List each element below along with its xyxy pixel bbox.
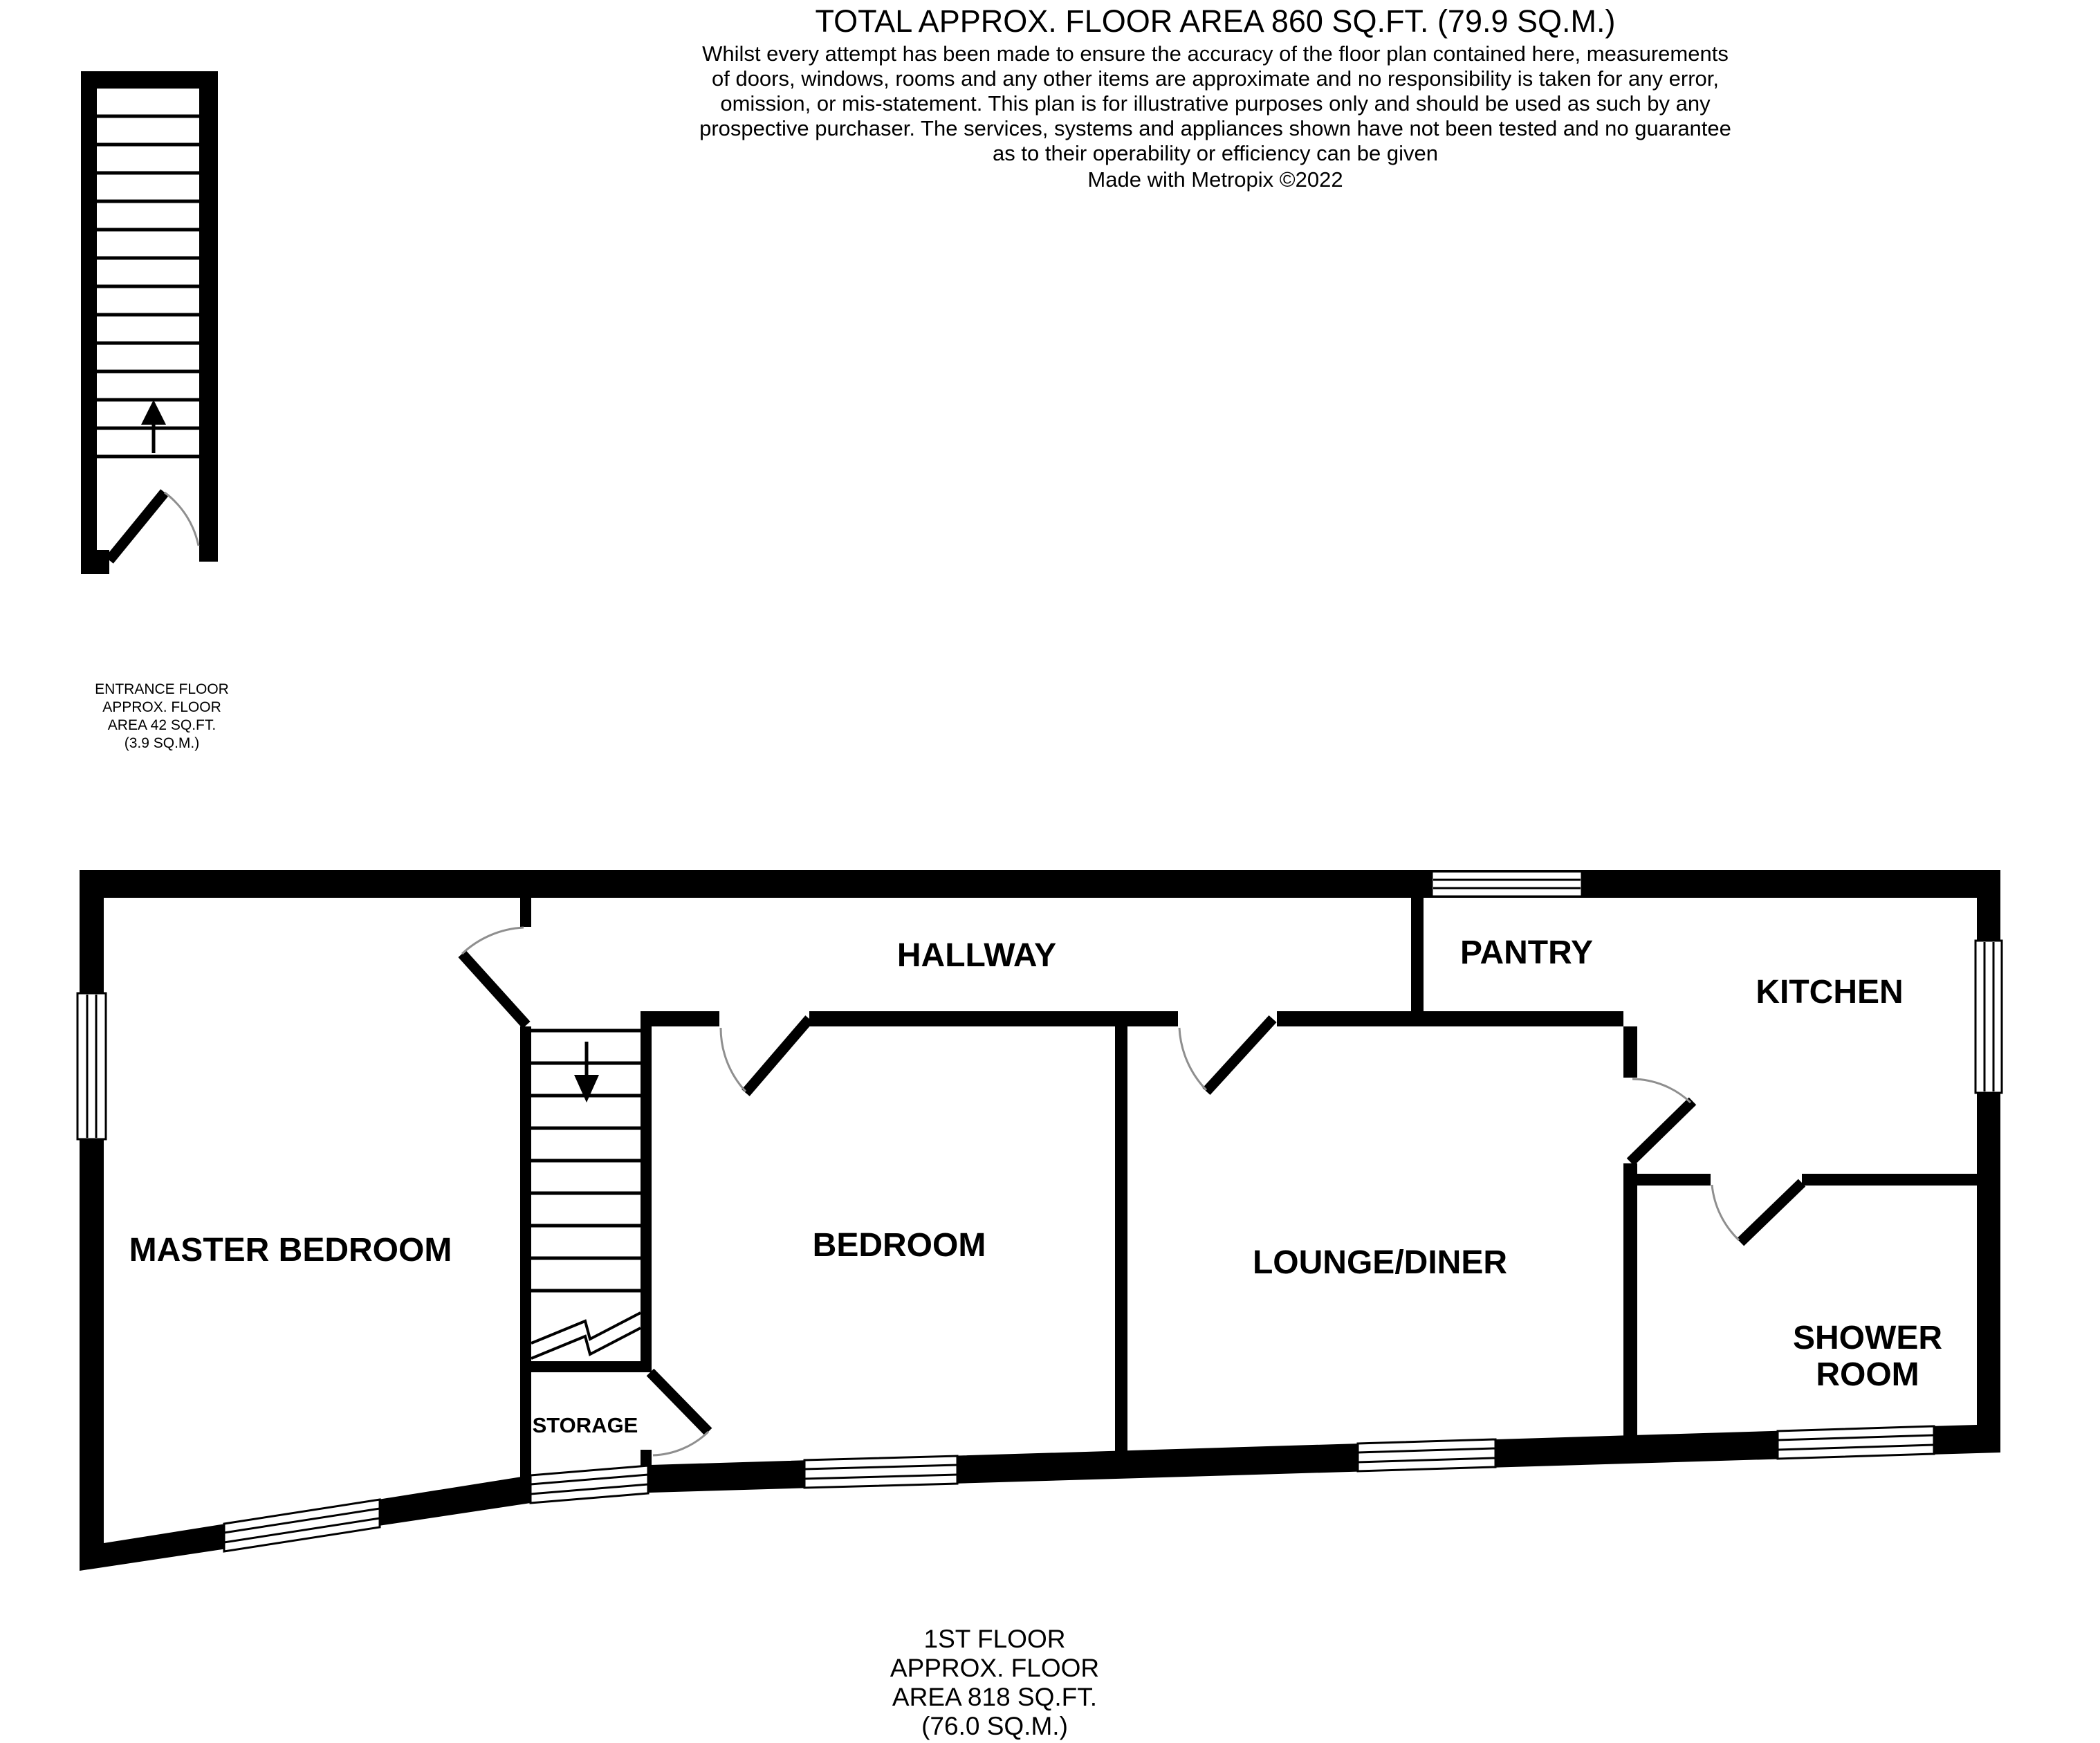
door-kitchen-to-shower-room: [1712, 1183, 1802, 1242]
total-area-title: TOTAL APPROX. FLOOR AREA 860 SQ.FT. (79.…: [815, 3, 1615, 39]
room-label-shower-room: ROOM: [1816, 1356, 1919, 1393]
door-arc: [462, 928, 524, 954]
entrance-label-line: ENTRANCE FLOOR: [95, 681, 229, 697]
floor-plan-page: TOTAL APPROX. FLOOR AREA 860 SQ.FT. (79.…: [0, 0, 2100, 1743]
entrance-label-line: AREA 42 SQ.FT.: [108, 717, 216, 733]
stairs-down-arrow-icon: [574, 1042, 599, 1103]
door-leaf: [1206, 1019, 1273, 1091]
door-master-bedroom: [462, 928, 526, 1025]
window-shower-room-bottom: [1778, 1426, 1934, 1459]
bedroom-wall-east: [1115, 1026, 1127, 1456]
stair-break-line: [531, 1328, 641, 1358]
entrance-label-line: (3.9 SQ.M.): [125, 735, 200, 751]
disclaimer-line: prospective purchaser. The services, sys…: [699, 116, 1731, 140]
entrance-wall-top: [81, 71, 218, 89]
door-arc: [1179, 1028, 1206, 1090]
entrance-floor-label: ENTRANCE FLOOR APPROX. FLOOR AREA 42 SQ.…: [95, 681, 229, 751]
window-master-bedroom-bottom: [224, 1500, 380, 1551]
stairwell-wall-right: [641, 1011, 652, 1372]
disclaimer-line: omission, or mis-statement. This plan is…: [720, 91, 1711, 116]
door-leaf: [1740, 1183, 1802, 1242]
door-bedroom: [721, 1019, 809, 1093]
floor-plan-canvas: TOTAL APPROX. FLOOR AREA 860 SQ.FT. (79.…: [0, 0, 2100, 1743]
first-floor-label-line: (76.0 SQ.M.): [921, 1712, 1068, 1740]
window-master-bedroom-left: [77, 993, 106, 1139]
shower-wall-north-segment: [1637, 1174, 1711, 1186]
door-lounge-diner: [1179, 1019, 1273, 1091]
entrance-label-line: APPROX. FLOOR: [102, 699, 221, 715]
first-floor-label: 1ST FLOOR APPROX. FLOOR AREA 818 SQ.FT. …: [890, 1625, 1099, 1740]
outer-wall-top: [80, 870, 2000, 898]
hallway-wall-segment: [809, 1011, 1178, 1026]
disclaimer-line: Whilst every attempt has been made to en…: [702, 41, 1729, 66]
door-storage: [650, 1372, 708, 1455]
room-label-storage: STORAGE: [533, 1413, 638, 1437]
room-label-bedroom: BEDROOM: [813, 1227, 986, 1264]
door-leaf: [1630, 1101, 1693, 1162]
lounge-kitchen-door-jamb: [1623, 1026, 1637, 1078]
entrance-staircase: [81, 71, 218, 574]
disclaimer-line: as to their operability or efficiency ca…: [993, 141, 1438, 165]
window-pantry-top: [1432, 871, 1582, 896]
outer-wall-left: [80, 870, 104, 1555]
room-label-shower-room: SHOWER: [1793, 1320, 1942, 1356]
door-arc: [721, 1028, 746, 1091]
entrance-stair-treads: [97, 116, 199, 456]
first-floor-label-line: 1ST FLOOR: [924, 1625, 1066, 1653]
window-storage-bottom: [531, 1466, 648, 1503]
first-floor-label-line: APPROX. FLOOR: [890, 1654, 1099, 1682]
door-arc: [1632, 1079, 1691, 1103]
pantry-wall-west: [1411, 898, 1424, 1026]
hallway-wall-segment: [1277, 1011, 1623, 1026]
room-label-master-bedroom: MASTER BEDROOM: [129, 1232, 452, 1269]
main-staircase: [531, 1031, 641, 1358]
hallway-wall-segment: [643, 1011, 719, 1026]
door-leaf: [650, 1372, 708, 1432]
storage-wall-north: [531, 1361, 652, 1372]
master-bedroom-door-jamb: [520, 898, 531, 927]
door-arc: [653, 1432, 708, 1455]
entrance-door-arc: [165, 492, 199, 546]
room-label-kitchen: KITCHEN: [1756, 974, 1903, 1011]
stairwell-wall-left: [520, 1026, 531, 1497]
first-floor-label-line: AREA 818 SQ.FT.: [892, 1683, 1097, 1711]
header-text-block: TOTAL APPROX. FLOOR AREA 860 SQ.FT. (79.…: [699, 3, 1731, 192]
lounge-wall-east: [1623, 1163, 1637, 1446]
window-lounge-bottom: [1358, 1439, 1495, 1471]
door-lounge-to-kitchen: [1630, 1079, 1693, 1162]
room-label-lounge-diner: LOUNGE/DINER: [1253, 1244, 1507, 1281]
entrance-door-leaf: [109, 492, 165, 560]
door-leaf: [462, 954, 526, 1025]
room-label-hallway: HALLWAY: [897, 937, 1056, 974]
first-floor-plan: HALLWAY MASTER BEDROOM BEDROOM LOUNGE/DI…: [77, 870, 2002, 1571]
room-label-pantry: PANTRY: [1460, 934, 1593, 971]
window-bedroom-bottom: [804, 1456, 957, 1488]
window-kitchen-right: [1975, 941, 2002, 1093]
door-leaf: [746, 1019, 809, 1093]
metropix-credit: Made with Metropix ©2022: [1087, 167, 1343, 192]
entrance-door-jamb-left: [81, 550, 109, 574]
entrance-wall-left: [81, 71, 97, 555]
shower-wall-north-segment: [1802, 1174, 1977, 1186]
outer-wall-bottom: [80, 1425, 2000, 1571]
entrance-wall-right: [199, 71, 218, 562]
disclaimer-line: of doors, windows, rooms and any other i…: [712, 66, 1719, 91]
door-arc: [1712, 1185, 1739, 1240]
